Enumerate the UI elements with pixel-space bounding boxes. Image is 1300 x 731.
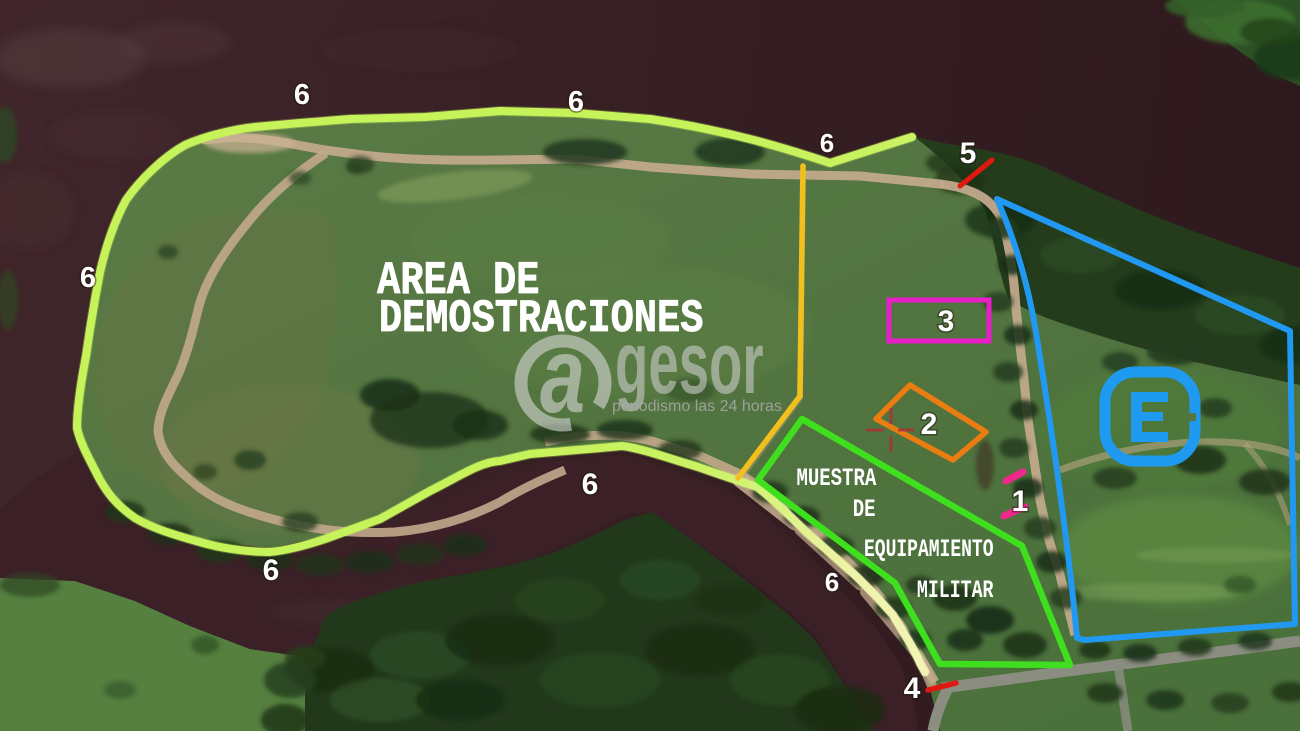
svg-text:DEMOSTRACIONES: DEMOSTRACIONES: [379, 293, 704, 345]
svg-text:6: 6: [820, 128, 834, 158]
svg-text:6: 6: [825, 567, 839, 597]
svg-text:2: 2: [921, 408, 938, 441]
svg-text:DE: DE: [853, 496, 876, 524]
svg-text:5: 5: [960, 137, 977, 170]
svg-text:4: 4: [904, 672, 921, 705]
svg-text:periodismo las 24 horas: periodismo las 24 horas: [612, 398, 782, 415]
svg-text:6: 6: [263, 554, 280, 587]
svg-text:1: 1: [1012, 485, 1029, 518]
svg-text:6: 6: [568, 86, 584, 118]
svg-text:MUESTRA: MUESTRA: [796, 465, 876, 493]
svg-text:MILITAR: MILITAR: [917, 576, 994, 605]
svg-text:EQUIPAMIENTO: EQUIPAMIENTO: [864, 535, 994, 564]
svg-text:6: 6: [294, 79, 310, 111]
svg-text:3: 3: [938, 305, 955, 338]
svg-text:6: 6: [80, 262, 96, 294]
svg-text:6: 6: [582, 468, 599, 501]
